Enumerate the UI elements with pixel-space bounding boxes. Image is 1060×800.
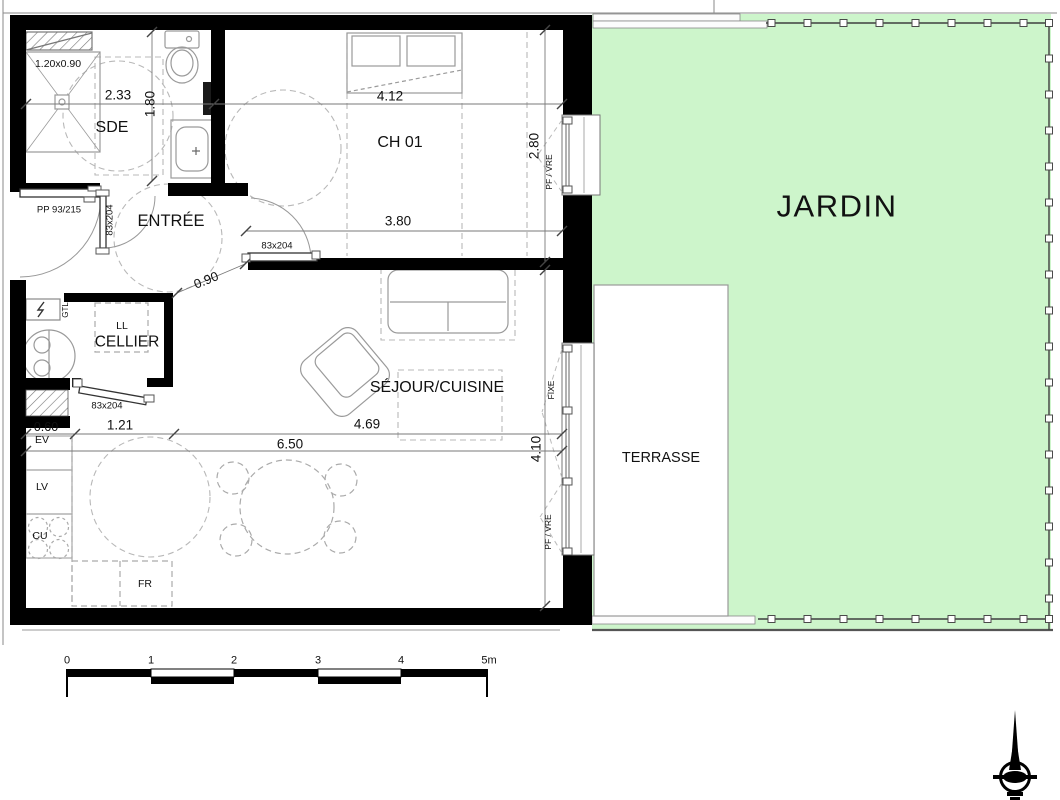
toilet	[165, 31, 199, 83]
scale-bar	[67, 669, 487, 697]
washer-box	[95, 303, 148, 352]
sofa	[388, 270, 508, 333]
floor-plan-drawing	[0, 0, 1060, 800]
terrace-area	[594, 285, 728, 616]
dishwasher	[26, 470, 72, 514]
washbasin	[171, 120, 213, 178]
floor-plan-sheet: 1.20x0.902.331.80SDE4.12CH 012.80PF / VR…	[0, 0, 1060, 800]
entrance-door	[20, 186, 101, 277]
sde-door	[96, 190, 155, 254]
dimension-lines	[21, 25, 567, 611]
kitchen-counter	[26, 436, 172, 606]
north-compass-icon	[993, 710, 1037, 800]
armchair	[296, 323, 395, 422]
sejour-window	[540, 343, 594, 555]
gtl-box	[26, 299, 60, 320]
wall-shelf	[203, 82, 212, 115]
fixtures	[23, 31, 508, 606]
kitchen-sink	[26, 436, 72, 470]
ch01-window	[537, 115, 600, 195]
ch01-door	[242, 198, 320, 262]
dining-table	[217, 460, 357, 556]
water-heater	[23, 330, 75, 382]
insulated-wall	[26, 390, 68, 416]
cooktop	[26, 514, 72, 558]
cellier-door	[73, 379, 154, 405]
bed	[347, 33, 462, 93]
fridge	[72, 561, 172, 606]
walls	[10, 15, 592, 625]
